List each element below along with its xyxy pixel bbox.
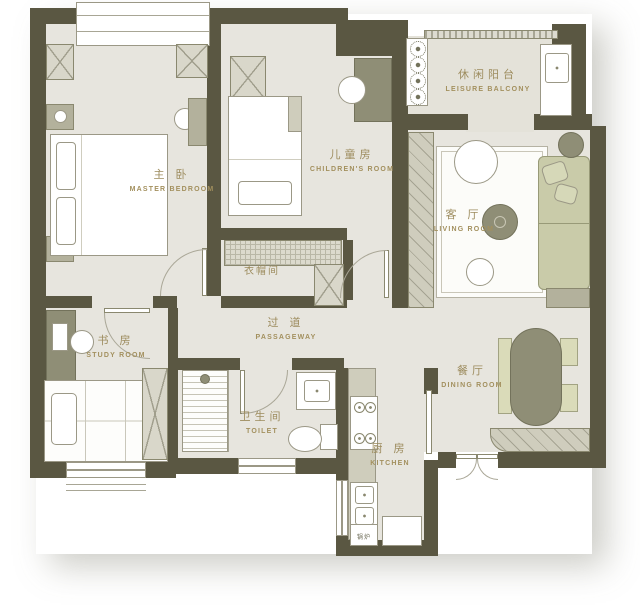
side-stool xyxy=(466,258,494,286)
label-cloakroom: 衣帽间 xyxy=(182,262,342,277)
label-kitchen: 厨 房 KITCHEN xyxy=(310,440,470,467)
throw-pillow xyxy=(553,182,579,205)
nightstand xyxy=(46,104,74,130)
label-toilet: 卫生间 TOILET xyxy=(182,408,342,435)
children-bed-shelf xyxy=(288,96,302,132)
boiler-label: 锅炉 xyxy=(351,532,377,541)
study-window-sill xyxy=(66,490,146,491)
fridge xyxy=(382,516,422,546)
pillow xyxy=(56,197,76,245)
wall-study-top-left xyxy=(30,296,92,308)
wall-bottom-right xyxy=(498,452,606,468)
sofa xyxy=(538,156,590,290)
wall-kitchen-right xyxy=(424,460,438,556)
wall-study-top-right xyxy=(153,296,177,308)
wall-master-children-divider xyxy=(207,24,221,296)
label-master-bedroom-en: MASTER BEDROOM xyxy=(92,186,252,193)
bed-fold-line xyxy=(81,135,82,255)
sink-basin xyxy=(355,507,374,525)
label-living-room-zh: 客 厅 xyxy=(384,206,544,222)
entry-cabinet xyxy=(490,428,590,452)
label-living-room: 客 厅 LIVING ROOM xyxy=(384,206,544,233)
label-leisure-balcony-zh: 休闲阳台 xyxy=(408,66,568,82)
master-wardrobe-left xyxy=(46,44,74,80)
sofa-cushion-line xyxy=(539,223,589,224)
boiler-box: 锅炉 xyxy=(350,524,378,546)
master-wardrobe-right xyxy=(176,44,208,78)
shower-head-icon xyxy=(200,374,210,384)
children-wardrobe xyxy=(230,56,266,100)
floor-balcony-opening xyxy=(466,112,534,132)
wall-balcony-living-left xyxy=(406,114,468,130)
sofa-side-table xyxy=(546,288,590,308)
wall-toilet-top-left xyxy=(176,358,240,370)
pillow xyxy=(56,142,76,190)
label-cloakroom-zh: 衣帽间 xyxy=(182,262,342,277)
study-wardrobe xyxy=(142,368,168,460)
kitchen-window xyxy=(336,480,348,536)
bay-window-line xyxy=(77,31,209,32)
label-children-room-en: CHILDREN'S ROOM xyxy=(272,166,432,173)
master-bed xyxy=(50,134,168,256)
master-dresser xyxy=(188,98,207,146)
bay-window-line xyxy=(77,15,209,16)
label-study-room-en: STUDY ROOM xyxy=(36,352,196,359)
label-toilet-en: TOILET xyxy=(182,428,342,435)
nightstand-lamp xyxy=(54,110,67,123)
study-window-sill xyxy=(66,484,146,485)
sink-basin xyxy=(304,380,330,402)
label-dining-room-en: DINING ROOM xyxy=(392,382,552,389)
lounge-chair xyxy=(454,140,498,184)
study-window xyxy=(66,462,146,478)
plant-icon xyxy=(410,41,426,57)
floor-plan: 锅炉 休闲阳台 LEISURE BALCONY xyxy=(0,0,640,605)
pillow xyxy=(51,393,77,445)
dining-bench-right-bottom xyxy=(560,384,578,412)
throw-pillow xyxy=(540,160,569,186)
toilet-sink xyxy=(296,372,336,410)
master-bay-window xyxy=(76,2,210,46)
children-desk-chair xyxy=(338,76,366,104)
kitchen-sink xyxy=(350,482,378,528)
label-master-bedroom-zh: 主 卧 xyxy=(92,166,252,182)
label-dining-room: 餐厅 DINING ROOM xyxy=(392,362,552,389)
plant-pot xyxy=(558,132,584,158)
wall-cloak-top xyxy=(221,228,347,240)
balcony-railing xyxy=(424,30,558,39)
label-passageway-en: PASSAGEWAY xyxy=(206,334,366,341)
label-toilet-zh: 卫生间 xyxy=(182,408,342,424)
burner-icon xyxy=(354,402,365,413)
label-study-room-zh: 书 房 xyxy=(36,332,196,348)
wall-balcony-living-right xyxy=(534,114,592,130)
dining-bench-right-top xyxy=(560,338,578,366)
label-kitchen-zh: 厨 房 xyxy=(310,440,470,456)
label-leisure-balcony: 休闲阳台 LEISURE BALCONY xyxy=(408,66,568,93)
label-passageway: 过 道 PASSAGEWAY xyxy=(206,314,366,341)
burner-icon xyxy=(365,402,376,413)
label-kitchen-en: KITCHEN xyxy=(310,460,470,467)
label-dining-room-zh: 餐厅 xyxy=(392,362,552,378)
label-children-room-zh: 儿童房 xyxy=(272,146,432,162)
sink-basin xyxy=(355,486,374,504)
label-passageway-zh: 过 道 xyxy=(206,314,366,330)
label-study-room: 书 房 STUDY ROOM xyxy=(36,332,196,359)
label-master-bedroom: 主 卧 MASTER BEDROOM xyxy=(92,166,252,193)
label-living-room-en: LIVING ROOM xyxy=(384,226,544,233)
label-children-room: 儿童房 CHILDREN'S ROOM xyxy=(272,146,432,173)
wall-right-main xyxy=(590,126,606,468)
label-leisure-balcony-en: LEISURE BALCONY xyxy=(408,86,568,93)
toilet-window xyxy=(238,458,296,474)
